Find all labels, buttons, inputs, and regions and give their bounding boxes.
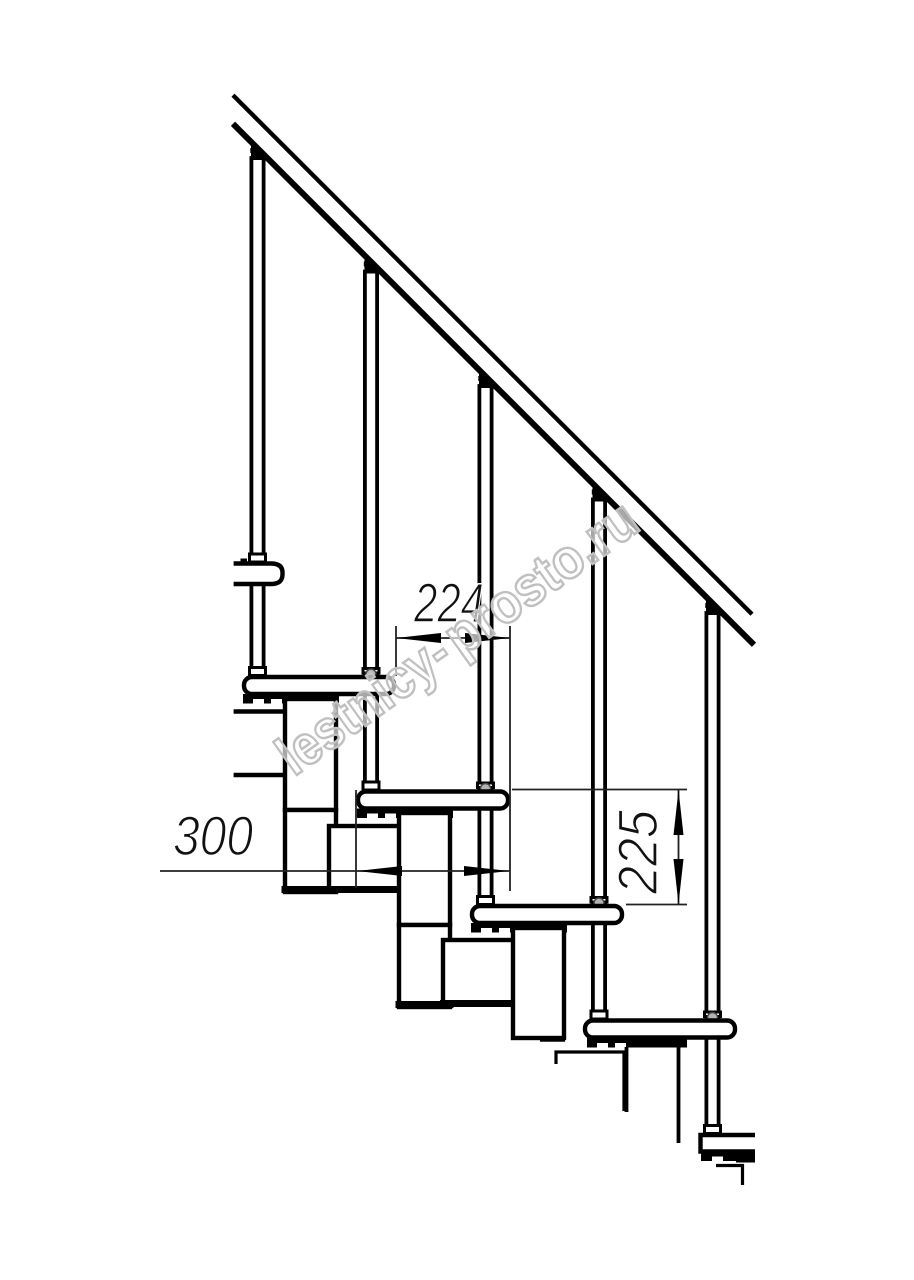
svg-text:300: 300 bbox=[173, 804, 253, 867]
svg-text:225: 225 bbox=[606, 809, 669, 895]
